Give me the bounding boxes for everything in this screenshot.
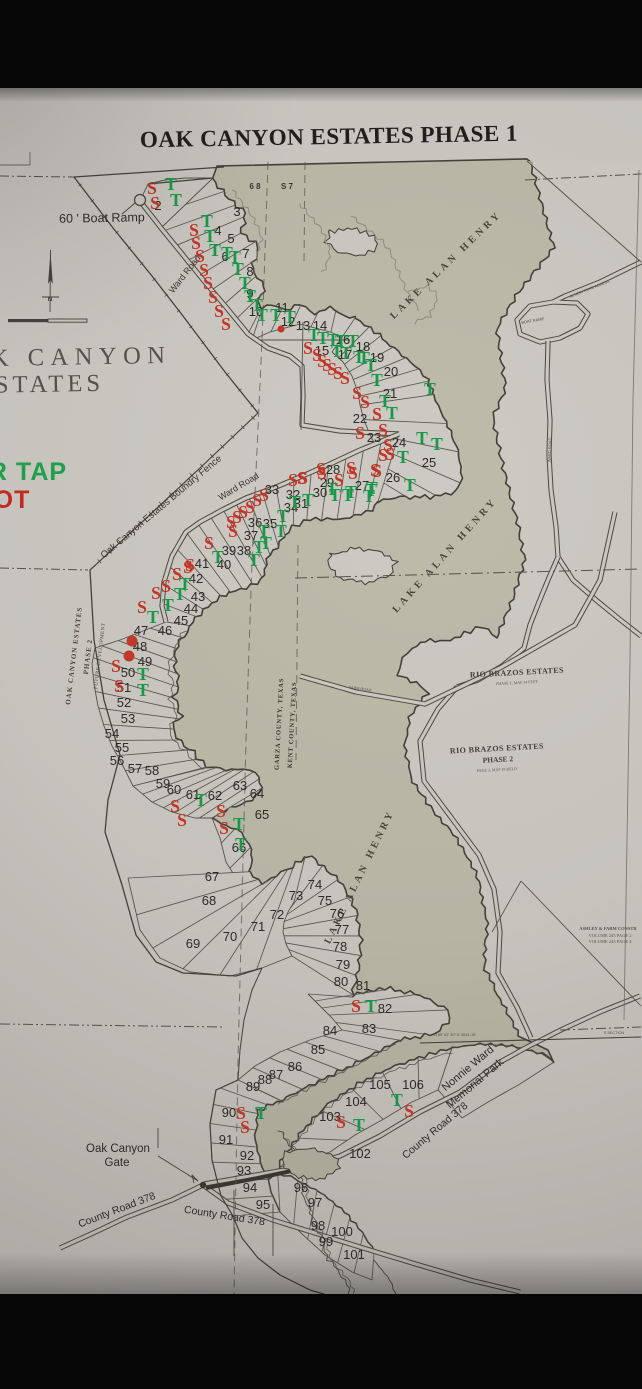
svg-text:S: S [240, 1117, 250, 1137]
svg-text:Gate: Gate [105, 1157, 130, 1169]
svg-text:98: 98 [311, 1218, 325, 1233]
svg-text:N 89°42' 30" E 2641.15': N 89°42' 30" E 2641.15' [434, 1032, 477, 1037]
svg-text:T: T [365, 996, 377, 1016]
svg-text:82: 82 [378, 1001, 392, 1016]
svg-text:85: 85 [311, 1042, 325, 1057]
svg-text:102: 102 [349, 1146, 371, 1161]
svg-text:104: 104 [345, 1094, 367, 1109]
svg-text:93: 93 [237, 1163, 251, 1178]
svg-text:89: 89 [246, 1079, 260, 1094]
svg-text:86: 86 [288, 1059, 302, 1074]
svg-text:92: 92 [240, 1148, 254, 1163]
svg-text:S SECTION: S SECTION [604, 1031, 625, 1035]
svg-text:100: 100 [331, 1224, 353, 1239]
svg-text:90: 90 [222, 1105, 236, 1120]
svg-text:83: 83 [362, 1021, 376, 1036]
svg-text:96: 96 [294, 1180, 308, 1195]
svg-text:T: T [255, 1103, 267, 1123]
svg-text:T: T [353, 1115, 365, 1135]
svg-text:91: 91 [219, 1132, 233, 1147]
svg-text:106: 106 [402, 1077, 424, 1092]
svg-text:84: 84 [323, 1023, 337, 1038]
svg-text:S: S [404, 1101, 414, 1121]
svg-text:105: 105 [369, 1077, 391, 1092]
svg-text:T: T [391, 1090, 403, 1110]
svg-text:95: 95 [256, 1197, 270, 1212]
svg-text:S: S [336, 1112, 346, 1132]
svg-text:Oak Canyon: Oak Canyon [86, 1143, 150, 1155]
svg-text:S: S [351, 996, 361, 1016]
svg-text:97: 97 [308, 1195, 322, 1210]
svg-text:94: 94 [243, 1180, 257, 1195]
